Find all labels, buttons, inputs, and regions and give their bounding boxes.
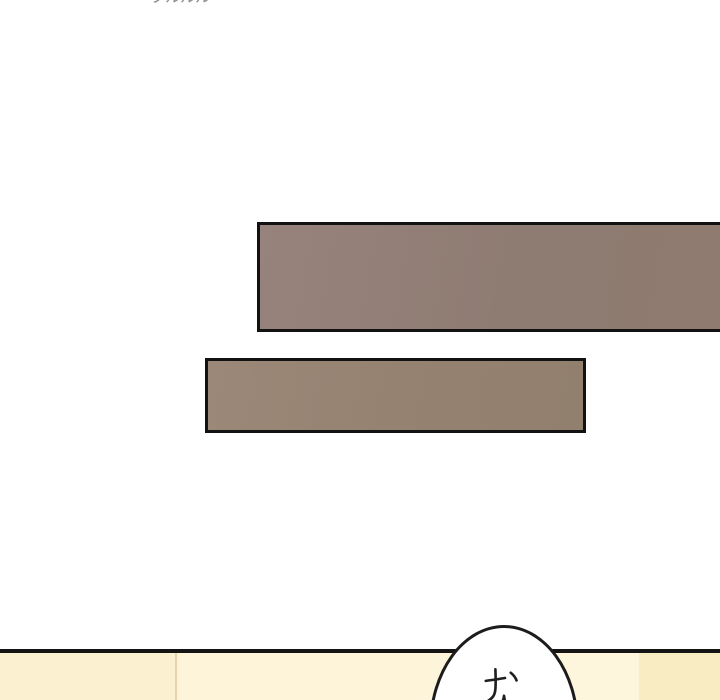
- hiragana-o-glyph: [481, 666, 529, 700]
- floor-strip-seam: [175, 653, 177, 700]
- floor-strip: [0, 653, 720, 700]
- panel-top: [257, 222, 720, 332]
- comic-page: プルルル お: [0, 0, 720, 700]
- cutoff-sfx-text: プルルル: [150, 0, 210, 5]
- floor-strip-left: [0, 653, 176, 700]
- speech-bubble-text: お: [0, 0, 1, 1]
- panel-bottom: [205, 358, 586, 433]
- floor-strip-right: [639, 653, 720, 700]
